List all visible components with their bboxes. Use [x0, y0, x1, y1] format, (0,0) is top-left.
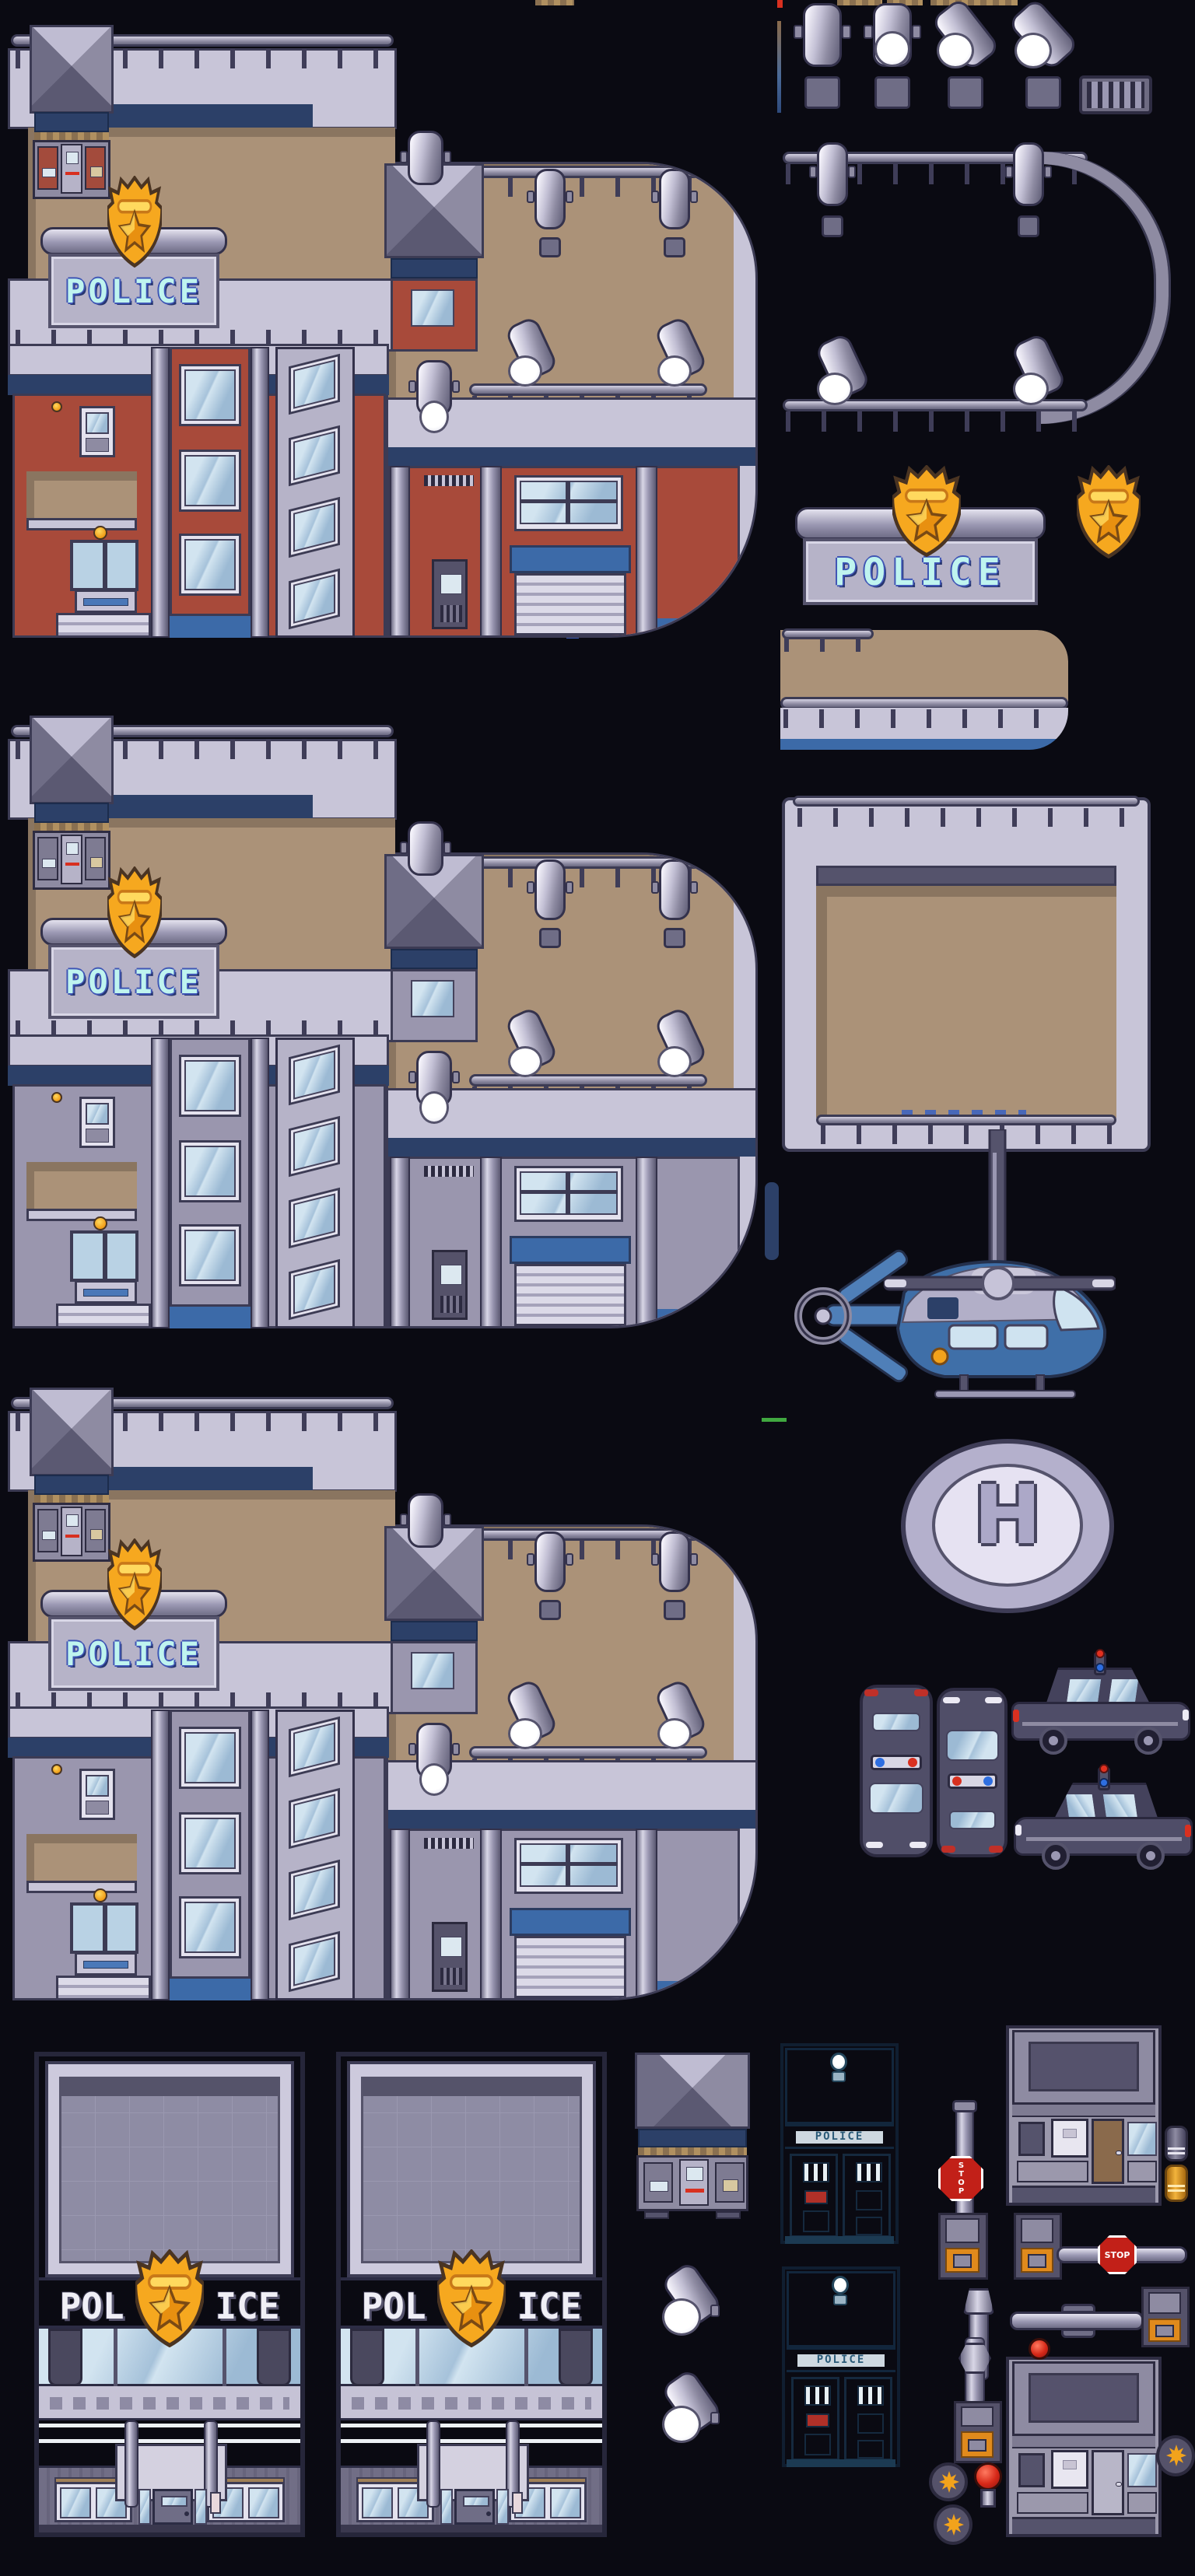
garage-blue-band	[510, 1236, 631, 1264]
door-grille	[803, 2162, 829, 2182]
headlight	[909, 1842, 927, 1848]
deck-spotlight-lit-icon	[651, 1682, 713, 1760]
tower-window	[179, 1055, 241, 1117]
lamp-lit-face	[508, 1718, 542, 1749]
police-car-top-up	[935, 1686, 1009, 1859]
hubcap	[1049, 1736, 1058, 1745]
slant-window	[289, 1259, 340, 1320]
kiosk-navy-band	[638, 2129, 747, 2147]
lamp-base	[948, 76, 983, 109]
badge-emblem-icon	[932, 1349, 948, 1364]
slant-tower	[275, 347, 355, 638]
wing-pillar-left	[390, 1829, 410, 2000]
window-glass	[184, 455, 236, 506]
lamp-bracket	[809, 166, 817, 178]
star-icon	[939, 2471, 959, 2493]
porch-post-left	[426, 2420, 440, 2508]
window-glass	[293, 1122, 335, 1171]
headlight	[866, 1842, 883, 1848]
door-window	[857, 2413, 884, 2434]
lamp-base	[804, 76, 840, 109]
right-tower-navy-band	[391, 258, 478, 278]
car-body	[860, 1685, 933, 1857]
barrier-base	[1014, 2213, 1062, 2280]
lamp-head	[659, 1531, 690, 1592]
body-trim	[1026, 1837, 1182, 1841]
tail-light	[1013, 1710, 1019, 1722]
badge-svg	[107, 176, 162, 268]
hanging-lamp-icon	[533, 1531, 567, 1625]
door-sign	[512, 2492, 523, 2514]
lamp-head	[408, 821, 443, 876]
gold-bolt-icon	[51, 1764, 62, 1775]
machine-label	[90, 166, 103, 177]
beacon-red	[1095, 1649, 1105, 1658]
door-side-glass	[440, 2489, 453, 2525]
base-panel	[961, 2406, 993, 2427]
red-beacon	[972, 2462, 1005, 2514]
ledge-dashes	[50, 2397, 289, 2410]
kiosk-awning-strip	[34, 132, 109, 140]
hanging-lamp-icon	[657, 859, 692, 953]
canopy-sign	[83, 1289, 128, 1297]
courtyard-deck	[816, 886, 1116, 1118]
police-car-side-right	[1010, 1661, 1192, 1756]
tower-window	[179, 1140, 241, 1202]
lamp-bracket	[443, 842, 451, 854]
lamp-lit-face	[657, 355, 692, 387]
lamp-head	[408, 131, 443, 185]
roof-shade	[61, 2079, 278, 2096]
kiosk-foot	[644, 2211, 669, 2219]
storefront-roof-panel	[347, 2061, 596, 2277]
lamp-bracket	[710, 2305, 720, 2317]
railing-with-lamps	[783, 142, 1172, 438]
machine-label	[723, 2179, 738, 2192]
skid-strut	[1036, 1375, 1044, 1392]
gold-bolt-icon	[51, 1092, 62, 1103]
terrace-deck	[26, 1162, 137, 1210]
wheel	[1042, 1842, 1070, 1870]
door-panel	[86, 1129, 109, 1143]
vending-machine-left	[37, 837, 58, 880]
vending-machine-right	[85, 146, 106, 190]
wall-spotlight-lit-icon	[412, 1723, 458, 1808]
gold-badge-icon	[107, 1538, 162, 1630]
base-panel	[945, 2218, 979, 2243]
landing-skid	[935, 1391, 1075, 1398]
station-navy-stripe	[82, 104, 313, 128]
hubcap	[1146, 1851, 1155, 1860]
police-box-sign-band: POLICE	[787, 2347, 895, 2372]
tower-pillar-left	[151, 1038, 170, 1328]
arm-handle-top	[1061, 2304, 1095, 2313]
tower-pillar-right	[251, 1710, 269, 2000]
terrace-deck	[26, 1834, 137, 1882]
slant-window	[289, 1116, 340, 1177]
rear-window	[872, 1713, 920, 1731]
police-box-label: POLICE	[787, 2354, 895, 2366]
wing-pillar-right	[636, 1829, 657, 2000]
deck-spotlight-lit-icon	[502, 1010, 564, 1088]
headlight	[943, 1697, 960, 1703]
door-window	[856, 2217, 882, 2235]
car-body	[937, 1688, 1008, 1857]
entrance-canopy-plate	[75, 1280, 137, 1304]
machine-slot	[65, 863, 79, 866]
entrance-steps	[56, 1976, 151, 2000]
sign-text-pol: POL	[45, 2285, 138, 2327]
kiosk-awning-strip	[34, 823, 109, 831]
badge-roundel-icon	[1156, 2435, 1195, 2476]
police-box: POLICE	[780, 2043, 899, 2244]
booth-stripe-right	[1127, 2161, 1157, 2182]
guard-booth	[1006, 2357, 1162, 2537]
tile-sliver	[762, 1418, 787, 1422]
window-mullion	[520, 1190, 618, 1194]
windshield	[946, 1730, 999, 1761]
badge-svg	[107, 1538, 162, 1630]
beacon-blue	[1095, 1663, 1105, 1672]
lamp-mount	[539, 928, 561, 948]
tail-light	[1185, 1825, 1191, 1837]
canopy-sign	[83, 1961, 128, 1969]
sign-text-ice: ICE	[503, 2285, 596, 2327]
glass-mullion	[114, 2329, 117, 2386]
lamp-bracket	[912, 25, 921, 39]
base-plate	[1155, 2325, 1174, 2337]
door-glass	[86, 1103, 109, 1125]
deck-spotlight-lit-icon	[1005, 337, 1071, 415]
lamp-bracket	[864, 25, 873, 39]
machine-screen	[686, 2167, 703, 2181]
glass-mullion	[223, 2329, 226, 2386]
grate-bars	[1087, 82, 1144, 108]
spotlight-small-lit-icon	[656, 2373, 724, 2449]
blade-tip	[1092, 1279, 1114, 1287]
beacon-pedestal	[980, 2489, 996, 2508]
glass-mullion	[524, 2329, 528, 2386]
vending-machine-left	[643, 2162, 673, 2203]
beacon-red	[1099, 1764, 1109, 1773]
gold-badge-icon	[107, 176, 162, 268]
lamp-head	[534, 169, 566, 229]
window-glass	[293, 1193, 335, 1242]
terrace-rim	[26, 1209, 137, 1221]
right-tower-window	[411, 980, 454, 1017]
garage-blue-band	[510, 1908, 631, 1936]
lamp-bracket	[651, 881, 659, 894]
police-station: POLICE	[8, 705, 758, 1330]
lamp-bracket	[400, 151, 408, 163]
kiosk-foot	[716, 2211, 741, 2219]
beacon-bulb	[974, 2462, 1002, 2490]
machine-screen	[440, 1937, 462, 1957]
machine-screen	[440, 1265, 462, 1285]
tower-pillar-right	[251, 347, 269, 638]
hanging-lamp-icon	[814, 142, 851, 243]
booth-door	[1092, 2119, 1124, 2184]
corner-light-red	[941, 1846, 955, 1853]
stop-sign-horizontal: STOP	[1098, 2235, 1137, 2274]
deck-spotlight-lit-icon	[651, 1010, 713, 1088]
door-window	[463, 2496, 489, 2507]
hubcap	[1144, 1736, 1153, 1745]
right-tower-window	[411, 289, 454, 327]
lamp-bracket	[1005, 166, 1013, 178]
wall-spotlight-lit-icon	[412, 360, 458, 446]
lamp-lit-face	[657, 1046, 692, 1077]
porch-post-left	[124, 2420, 138, 2508]
headlight	[985, 1697, 1002, 1703]
booth-window-white	[1051, 2119, 1088, 2158]
police-station: POLICE	[8, 1377, 758, 2002]
lamp-bracket	[527, 191, 534, 203]
base-orange	[945, 2248, 979, 2273]
police-box-door-right	[843, 2154, 891, 2238]
garage-shutter-door	[514, 573, 626, 635]
hanging-lamp-icon	[657, 169, 692, 262]
tower-pillar-left	[151, 347, 170, 638]
awning-line	[341, 2439, 602, 2443]
upper-door	[79, 1097, 115, 1148]
ticket-machine	[432, 559, 468, 629]
badge-svg	[135, 2249, 204, 2347]
tile-sliver	[777, 0, 783, 8]
slant-window	[289, 354, 340, 415]
door-panel	[86, 1801, 109, 1815]
door-handle	[486, 2511, 491, 2516]
wing-pillar-center	[480, 466, 502, 638]
ticket-machine	[432, 1922, 468, 1992]
cabin-window	[1005, 1325, 1047, 1349]
rail-segment-posts	[784, 638, 871, 652]
roof-lamp-icon	[830, 2276, 852, 2310]
window-glass	[184, 1060, 236, 1111]
slant-tower	[275, 1710, 355, 2000]
wing-window	[514, 1166, 623, 1222]
roof-shade	[363, 2079, 580, 2096]
entry-door	[454, 2489, 495, 2525]
barrier-base	[938, 2213, 988, 2280]
lamp-bracket	[443, 1514, 451, 1526]
spotlight-small-lit-icon	[656, 2266, 724, 2342]
window-glass	[293, 1722, 335, 1771]
police-box-door-left	[791, 2377, 839, 2461]
machine-label	[90, 1529, 103, 1540]
door-glass	[86, 412, 109, 434]
light-red	[952, 1776, 962, 1786]
glass-mullion	[415, 2329, 419, 2386]
lamp-bracket	[452, 1071, 460, 1083]
police-box-label: POLICE	[785, 2130, 894, 2143]
badge-svg	[437, 2249, 506, 2347]
right-tower-navy-band	[391, 1621, 478, 1641]
machine-grille	[440, 1296, 462, 1313]
slant-window	[289, 1045, 340, 1105]
headlight	[1015, 1825, 1022, 1836]
corner-light-red	[914, 1689, 928, 1696]
vent-grate-icon	[1079, 75, 1152, 114]
gold-badge-icon	[437, 2249, 506, 2347]
lamp-bracket	[690, 881, 698, 894]
lamp-lit-face	[508, 1046, 542, 1077]
cylinder-gold	[1165, 2165, 1188, 2202]
garage-blue-band	[510, 545, 631, 573]
lamp-lit-face	[874, 31, 910, 67]
machine-label	[90, 857, 103, 868]
door-sign	[210, 2492, 221, 2514]
slant-window	[289, 1788, 340, 1849]
lamp-lit-face	[508, 355, 542, 387]
wing-pillar-right	[636, 466, 657, 638]
red-notice-sign	[806, 2413, 829, 2427]
vent-slits	[424, 1838, 474, 1849]
stop-sign-text: STOP	[957, 2161, 965, 2196]
lamp-head	[659, 169, 690, 229]
posted-note	[1063, 2129, 1077, 2138]
base-plate	[968, 2439, 986, 2452]
lamp-bracket	[400, 842, 408, 854]
storefront-ledge	[341, 2386, 602, 2420]
lamp-mount	[664, 928, 685, 948]
rooftop-kiosk-pyramid-roof	[30, 716, 114, 804]
deck-spotlight-lit-icon	[502, 320, 564, 397]
roof-rail-posts	[783, 709, 1065, 728]
wing-base-stripe	[657, 618, 758, 638]
wheel	[1039, 1727, 1067, 1755]
lamp-base	[874, 76, 910, 109]
side-vents	[927, 1297, 958, 1319]
tower-base	[170, 1979, 251, 2000]
booth-beacon-icon	[1029, 2338, 1050, 2360]
lamp-head	[659, 859, 690, 920]
window-glass	[184, 539, 236, 590]
storefront-ledge	[39, 2386, 300, 2420]
upper-door	[79, 1769, 115, 1820]
door-window	[857, 2440, 884, 2459]
tower-base	[170, 616, 251, 638]
barrier-arm-horizontal	[1010, 2312, 1144, 2330]
helipad-h-mark: H	[906, 1475, 1109, 1556]
window-glass	[293, 502, 335, 551]
door-glass	[86, 1775, 109, 1797]
door-grille	[856, 2162, 882, 2182]
vending-machine-center	[61, 835, 82, 884]
roof-courtyard	[782, 797, 1151, 1152]
mast-highlight	[993, 1153, 997, 1277]
station-navy-stripe	[82, 795, 313, 818]
police-box-sign-band: POLICE	[785, 2124, 894, 2149]
machine-grille	[440, 605, 462, 622]
wing-base-stripe	[657, 1981, 758, 2000]
window-mullion	[520, 499, 618, 503]
roof-inner-panel	[59, 2077, 280, 2263]
wing-pillar-right	[636, 1157, 657, 1328]
glass-pillar	[559, 2329, 593, 2386]
police-box-door-left	[790, 2154, 838, 2238]
entrance-badge-lamp-icon	[93, 1216, 107, 1230]
base-panel	[1021, 2218, 1053, 2243]
machine-label	[42, 859, 56, 868]
awning-line	[39, 2424, 300, 2427]
garage-shutter-door	[514, 1264, 626, 1326]
lamp-bracket	[710, 2412, 720, 2424]
tower-window	[179, 534, 241, 596]
machine-screen	[66, 842, 79, 855]
lamp-lit-face	[662, 2406, 701, 2443]
lamp-mount	[1018, 215, 1039, 237]
lamp-bracket	[794, 25, 803, 39]
entrance-canopy-plate	[75, 590, 137, 613]
sign-text-ice: ICE	[201, 2285, 294, 2327]
glass-pillar	[350, 2329, 384, 2386]
slant-window	[289, 1188, 340, 1248]
garage-shutter-door	[514, 1936, 626, 1998]
vending-machine-left	[37, 1509, 58, 1552]
window-glass	[293, 1050, 335, 1099]
lamp-mount	[664, 237, 685, 257]
lamp-bulb	[832, 2276, 849, 2294]
booth-base	[1012, 2186, 1155, 2203]
lamp-mount	[832, 2071, 846, 2082]
wall-spotlight-lit-icon	[412, 1051, 458, 1136]
gold-badge-icon	[135, 2249, 204, 2347]
window-glass	[184, 1902, 236, 1953]
slant-window	[289, 569, 340, 629]
body-trim	[1022, 1722, 1178, 1726]
badge-svg	[1077, 465, 1141, 558]
base-orange	[961, 2431, 993, 2458]
entrance-glass-doors	[70, 1230, 138, 1282]
wheel	[1134, 1727, 1162, 1755]
slant-window	[289, 1860, 340, 1920]
tile-sliver	[777, 21, 781, 113]
roof-lamp-icon	[829, 2053, 850, 2087]
machine-screen	[440, 574, 462, 594]
stacked-cylinders	[1165, 2126, 1190, 2203]
cylinder-coil	[1168, 2147, 1185, 2157]
lamp-bracket	[452, 380, 460, 393]
lamp-bracket	[651, 1553, 659, 1566]
lamp-bracket	[566, 1553, 573, 1566]
right-tower-navy-band	[391, 949, 478, 969]
barrier-pole-flare	[963, 2288, 994, 2315]
gold-badge-icon	[107, 866, 162, 958]
booth-roof-panel	[1029, 2373, 1139, 2423]
booth-soffit	[1012, 2436, 1155, 2448]
vent-slits	[424, 475, 474, 486]
police-storefront: POL ICE	[34, 2052, 305, 2537]
kiosk-navy-band	[34, 112, 109, 132]
stop-sign-text: STOP	[1105, 2250, 1130, 2260]
lamp-bracket	[690, 1553, 698, 1566]
deck-spotlight-lit-icon	[651, 320, 713, 397]
vending-machine-right	[85, 837, 106, 880]
window-glass	[248, 2487, 279, 2518]
base-orange	[1148, 2319, 1181, 2342]
wheel	[1137, 1842, 1165, 1870]
base-plate	[953, 2254, 972, 2268]
machine-slot	[65, 1535, 79, 1538]
lamp-head	[1013, 142, 1044, 206]
badge-roundel-icon	[929, 2462, 968, 2501]
roof-blue-stripe	[780, 739, 1068, 750]
window-glass	[362, 2487, 393, 2518]
lamp-lit-face	[657, 1718, 692, 1749]
door-window	[856, 2190, 882, 2210]
window-glass	[293, 359, 335, 408]
